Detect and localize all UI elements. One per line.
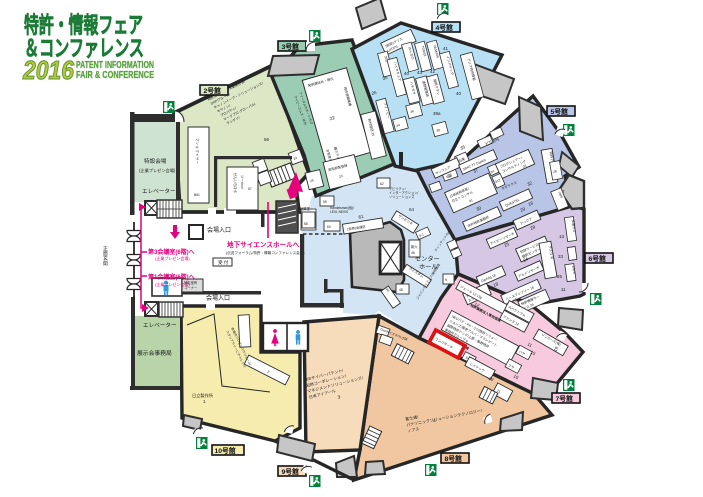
svg-text:4号館: 4号館: [436, 23, 454, 32]
svg-text:地下サイエンスホールへ: 地下サイエンスホールへ: [227, 240, 300, 249]
svg-text:(伝送フォーラム/特許・情報コンファレンス会場): (伝送フォーラム/特許・情報コンファレンス会場): [226, 250, 305, 255]
svg-text:10号館: 10号館: [215, 446, 236, 455]
svg-text:2016: 2016: [22, 55, 74, 85]
svg-text:7号館: 7号館: [556, 394, 574, 403]
svg-text:第1会議室(6階)へ: 第1会議室(6階)へ: [147, 273, 195, 281]
svg-text:地翼墨: 地翼墨: [300, 206, 311, 211]
svg-text:64: 64: [409, 207, 415, 212]
svg-text:40: 40: [404, 71, 410, 76]
svg-text:39a: 39a: [433, 111, 441, 116]
svg-text:会場入口: 会場入口: [207, 226, 231, 234]
svg-text:会場入口: 会場入口: [206, 294, 230, 302]
svg-text:特設会場: 特設会場: [144, 157, 167, 165]
svg-text:(企業プレゼン会場): (企業プレゼン会場): [139, 167, 176, 174]
svg-text:40: 40: [456, 91, 462, 96]
svg-text:58: 58: [304, 222, 308, 226]
svg-text:11: 11: [561, 287, 566, 292]
svg-text:日立製作所: 日立製作所: [192, 392, 213, 399]
svg-text:関: 関: [103, 261, 108, 267]
svg-text:43: 43: [417, 70, 423, 75]
svg-text:B61: B61: [194, 193, 200, 197]
svg-text:マンキマイサー: マンキマイサー: [195, 138, 200, 165]
svg-text:25: 25: [557, 274, 563, 279]
svg-text:展示会事務局: 展示会事務局: [137, 349, 172, 357]
svg-text:LEXL NEXIS: LEXL NEXIS: [330, 210, 348, 214]
svg-text:13: 13: [559, 234, 565, 239]
svg-text:46: 46: [411, 251, 415, 255]
svg-text:玄: 玄: [103, 255, 108, 262]
svg-text:62: 62: [380, 182, 384, 186]
svg-text:2号館: 2号館: [204, 86, 222, 95]
svg-text:6号館: 6号館: [589, 254, 607, 263]
svg-text:57: 57: [248, 187, 252, 191]
svg-text:9: 9: [445, 278, 447, 282]
svg-text:41: 41: [443, 46, 449, 51]
svg-text:56: 56: [264, 137, 270, 142]
svg-text:(企業プレゼン会場): (企業プレゼン会場): [155, 281, 190, 287]
svg-text:ジーchurl: ジーchurl: [240, 175, 244, 189]
svg-text:5号館: 5号館: [551, 107, 569, 116]
svg-text:新六: 新六: [411, 244, 418, 249]
svg-text:9号館: 9号館: [282, 467, 300, 476]
svg-text:エレベーター: エレベーター: [142, 187, 176, 195]
svg-text:48: 48: [399, 288, 403, 292]
svg-text:特許・情報フェア: 特許・情報フェア: [24, 12, 143, 38]
svg-text:(企業プレゼン会場): (企業プレゼン会場): [155, 255, 190, 261]
svg-text:FAIR & CONFERENCE: FAIR & CONFERENCE: [76, 70, 154, 81]
svg-text:8号館: 8号館: [445, 454, 463, 463]
svg-text:受 付: 受 付: [218, 259, 229, 266]
svg-text:33: 33: [558, 254, 564, 259]
svg-text:3号館: 3号館: [282, 42, 300, 51]
svg-text:60: 60: [327, 225, 331, 229]
svg-text:ソリューションズ: ソリューションズ: [389, 194, 415, 199]
svg-text:59: 59: [323, 200, 327, 204]
svg-text:エレベーター: エレベーター: [143, 321, 177, 329]
svg-text:第3会議室(6階)へ: 第3会議室(6階)へ: [147, 248, 195, 256]
svg-text:42: 42: [430, 69, 436, 74]
svg-text:ぜんいちロボ: ぜんいちロボ: [233, 173, 238, 193]
